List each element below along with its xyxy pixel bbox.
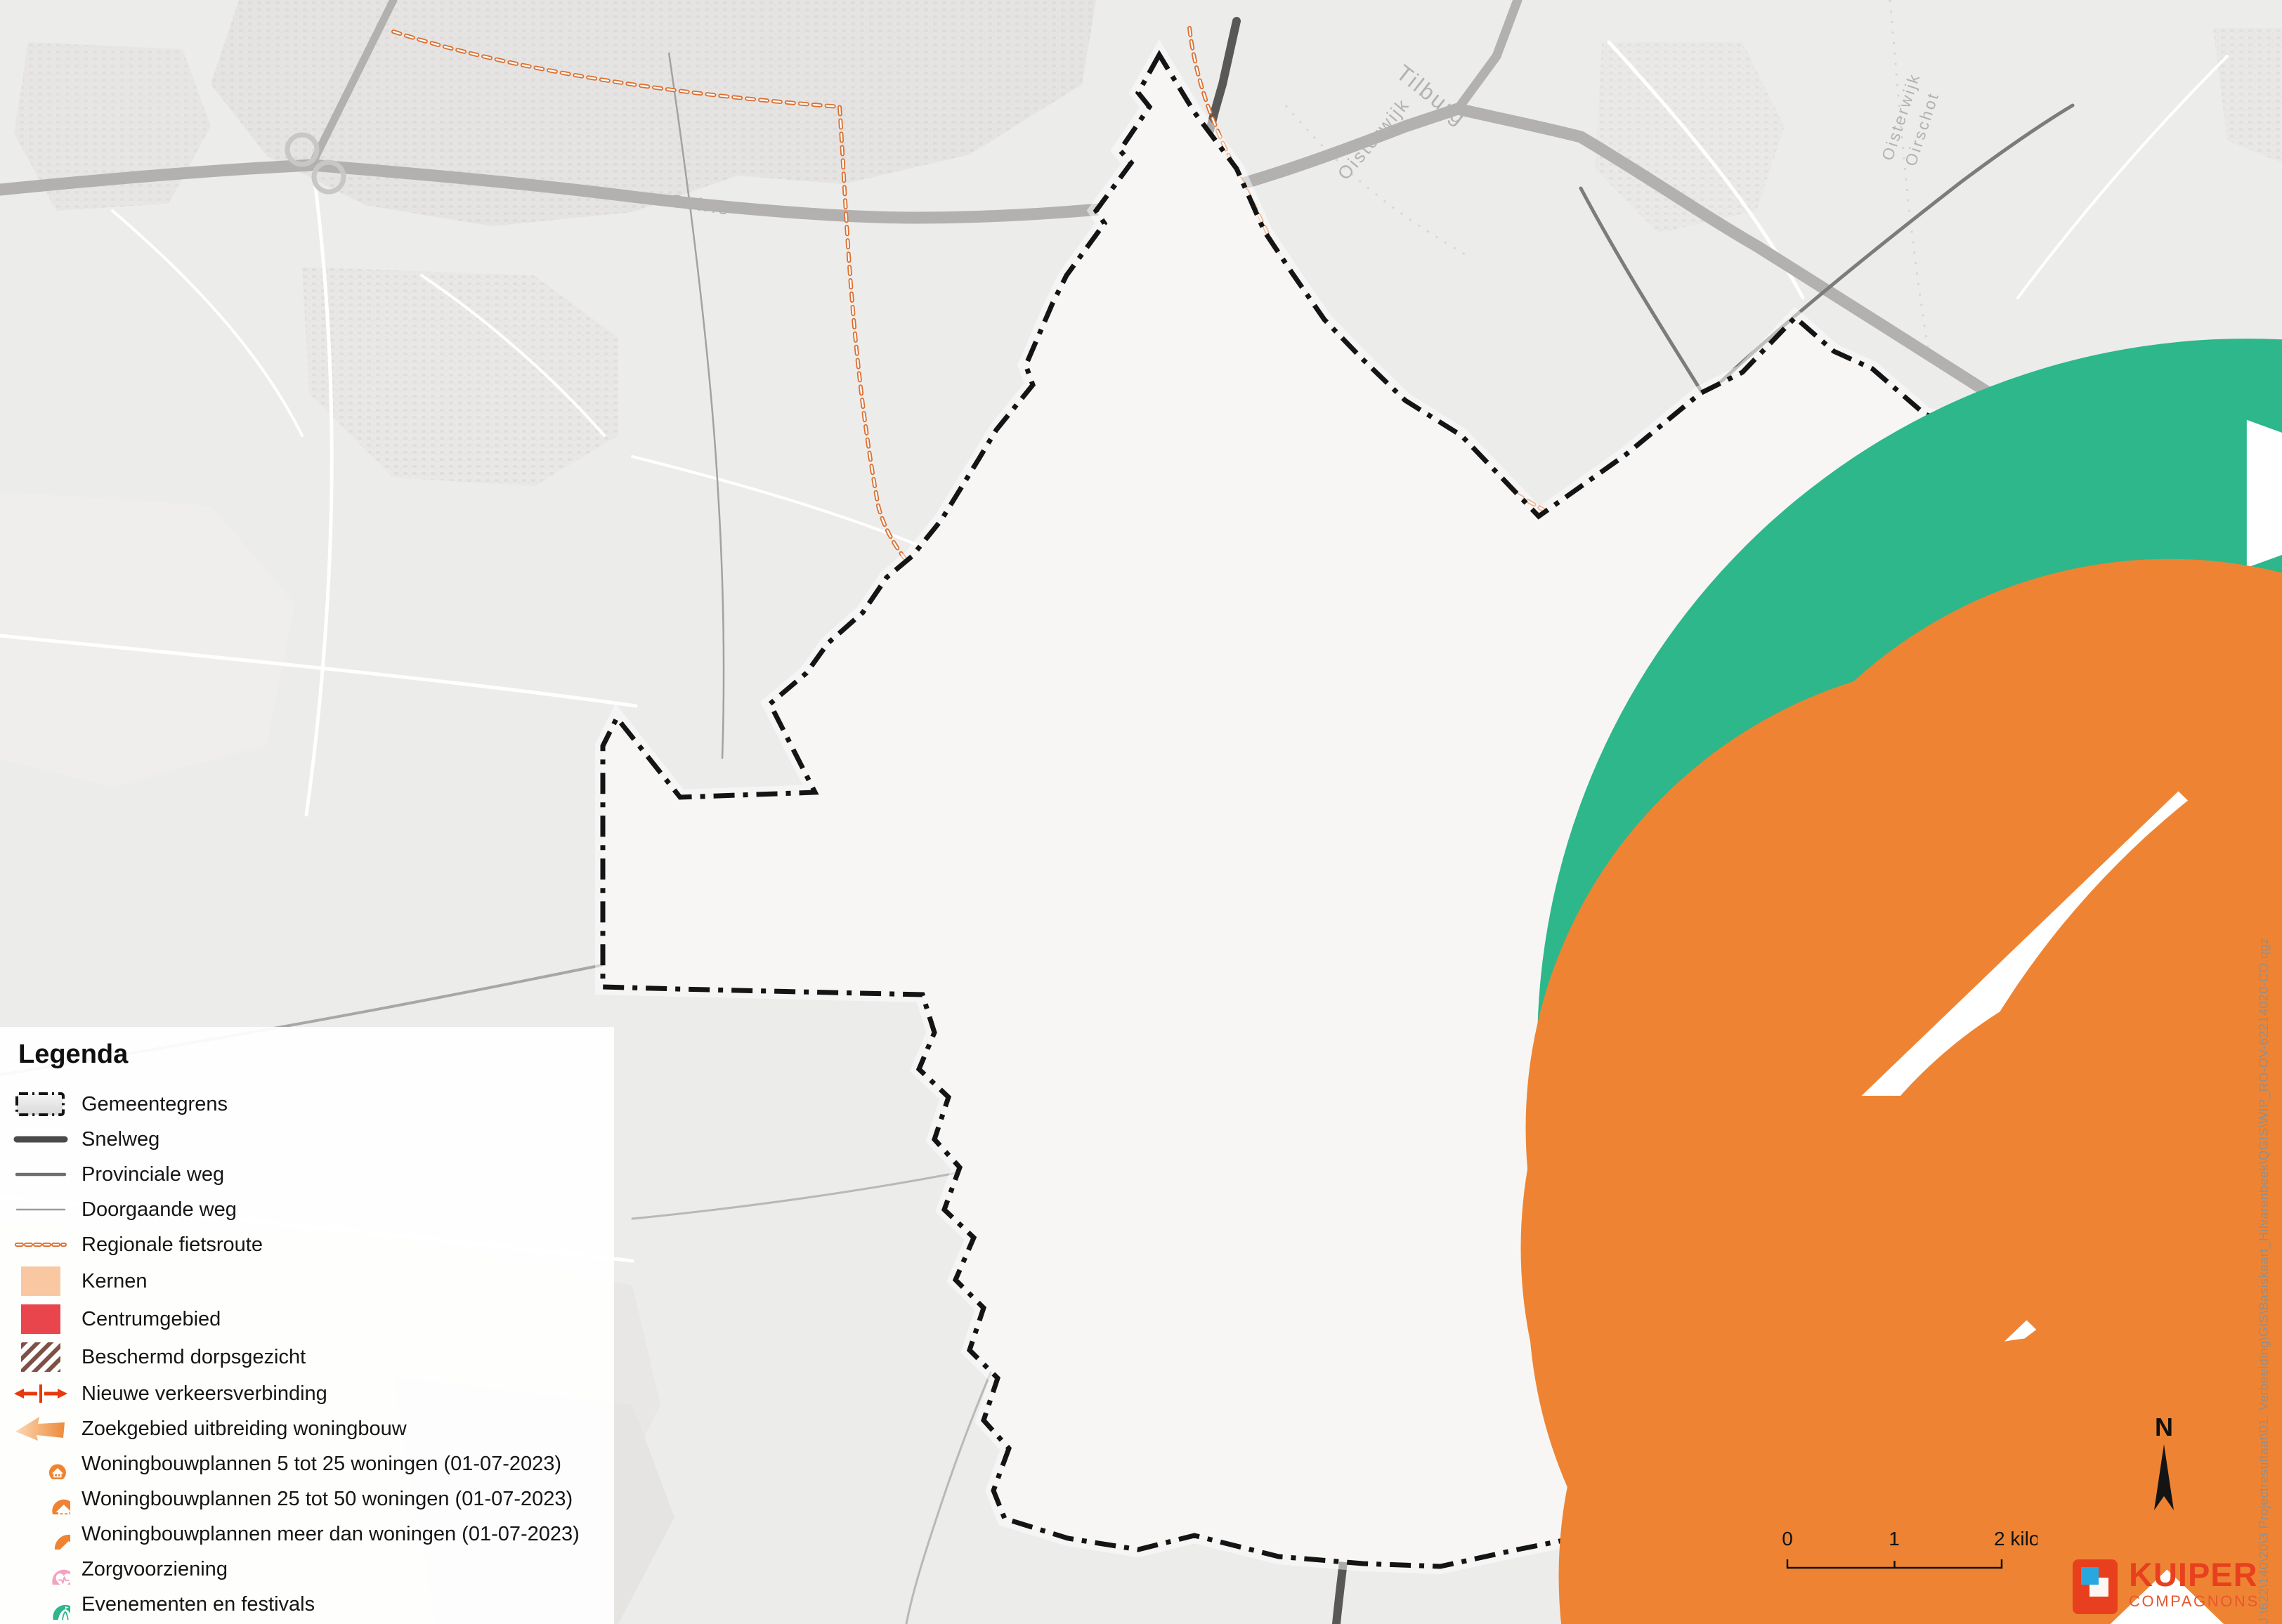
north-needle-icon: [2154, 1444, 2174, 1510]
legend-item-kernen: Kernen: [0, 1262, 614, 1300]
provinciale-weg-swatch: [0, 1159, 81, 1190]
evenementen-icon: [0, 1589, 81, 1620]
snelweg-swatch: [0, 1124, 81, 1155]
scale-bar: 0 1 2 kilometer: [1756, 1524, 2037, 1591]
north-label: N: [2155, 1413, 2173, 1441]
woningbouw-5-25-icon: [0, 1448, 81, 1479]
centrumgebied-swatch: [0, 1302, 81, 1336]
scale-label-0: 0: [1782, 1528, 1793, 1550]
kuiper-compagnons-logo: KUIPER COMPAGNONS: [2073, 1559, 2260, 1614]
gemeentegrens-swatch: [0, 1089, 81, 1120]
zoekgebied-swatch: [0, 1413, 81, 1444]
legend-item-provinciale-weg: Provinciale weg: [0, 1157, 614, 1192]
legend-item-centrumgebied: Centrumgebied: [0, 1300, 614, 1338]
legend-item-beschermd-dorpsgezicht: Beschermd dorpsgezicht: [0, 1338, 614, 1376]
source-file-path: J:\622\140\20\3 Projectresultaat\01. Ver…: [2257, 938, 2271, 1624]
legend-item-woningbouw-25-50: Woningbouwplannen 25 tot 50 woningen (01…: [0, 1481, 614, 1517]
north-arrow: N: [2129, 1410, 2199, 1519]
legend-title: Legenda: [18, 1040, 614, 1070]
zorgvoorziening-icon: [0, 1554, 81, 1585]
woningbouw-25-50-icon: [0, 1484, 81, 1514]
nieuwe-verkeersverbinding-swatch: [0, 1378, 81, 1409]
woningbouw-meer-dan-icon: [0, 1519, 81, 1550]
legend-panel: Legenda Gemeentegrens Snelweg Provincial…: [0, 1027, 614, 1624]
beschermd-dorpsgezicht-swatch: [0, 1340, 81, 1374]
logo-mark-icon: [2073, 1559, 2118, 1614]
scale-bar-line: [1787, 1559, 2002, 1568]
legend-item-zorgvoorziening: Zorgvoorziening: [0, 1552, 614, 1587]
legend-item-evenementen: Evenementen en festivals: [0, 1587, 614, 1622]
legend-item-regionale-fietsroute: Regionale fietsroute: [0, 1227, 614, 1262]
regionale-fietsroute-swatch: [0, 1229, 81, 1260]
kernen-swatch: [0, 1264, 81, 1298]
scale-label-2: 2 kilometer: [1994, 1528, 2037, 1550]
legend-item-woningbouw-meer-dan: Woningbouwplannen meer dan woningen (01-…: [0, 1517, 614, 1552]
legend-item-nieuwe-verkeersverbinding: Nieuwe verkeersverbinding: [0, 1376, 614, 1411]
legend-item-doorgaande-weg: Doorgaande weg: [0, 1192, 614, 1227]
logo-name: KUIPER: [2129, 1559, 2260, 1590]
legend-item-snelweg: Snelweg: [0, 1122, 614, 1157]
logo-subname: COMPAGNONS: [2129, 1593, 2260, 1610]
legend-item-zoekgebied: Zoekgebied uitbreiding woningbouw: [0, 1411, 614, 1446]
doorgaande-weg-swatch: [0, 1194, 81, 1225]
legend-item-gemeentegrens: Gemeentegrens: [0, 1087, 614, 1122]
legend-item-woningbouw-5-25: Woningbouwplannen 5 tot 25 woningen (01-…: [0, 1446, 614, 1481]
scale-label-1: 1: [1889, 1528, 1900, 1550]
